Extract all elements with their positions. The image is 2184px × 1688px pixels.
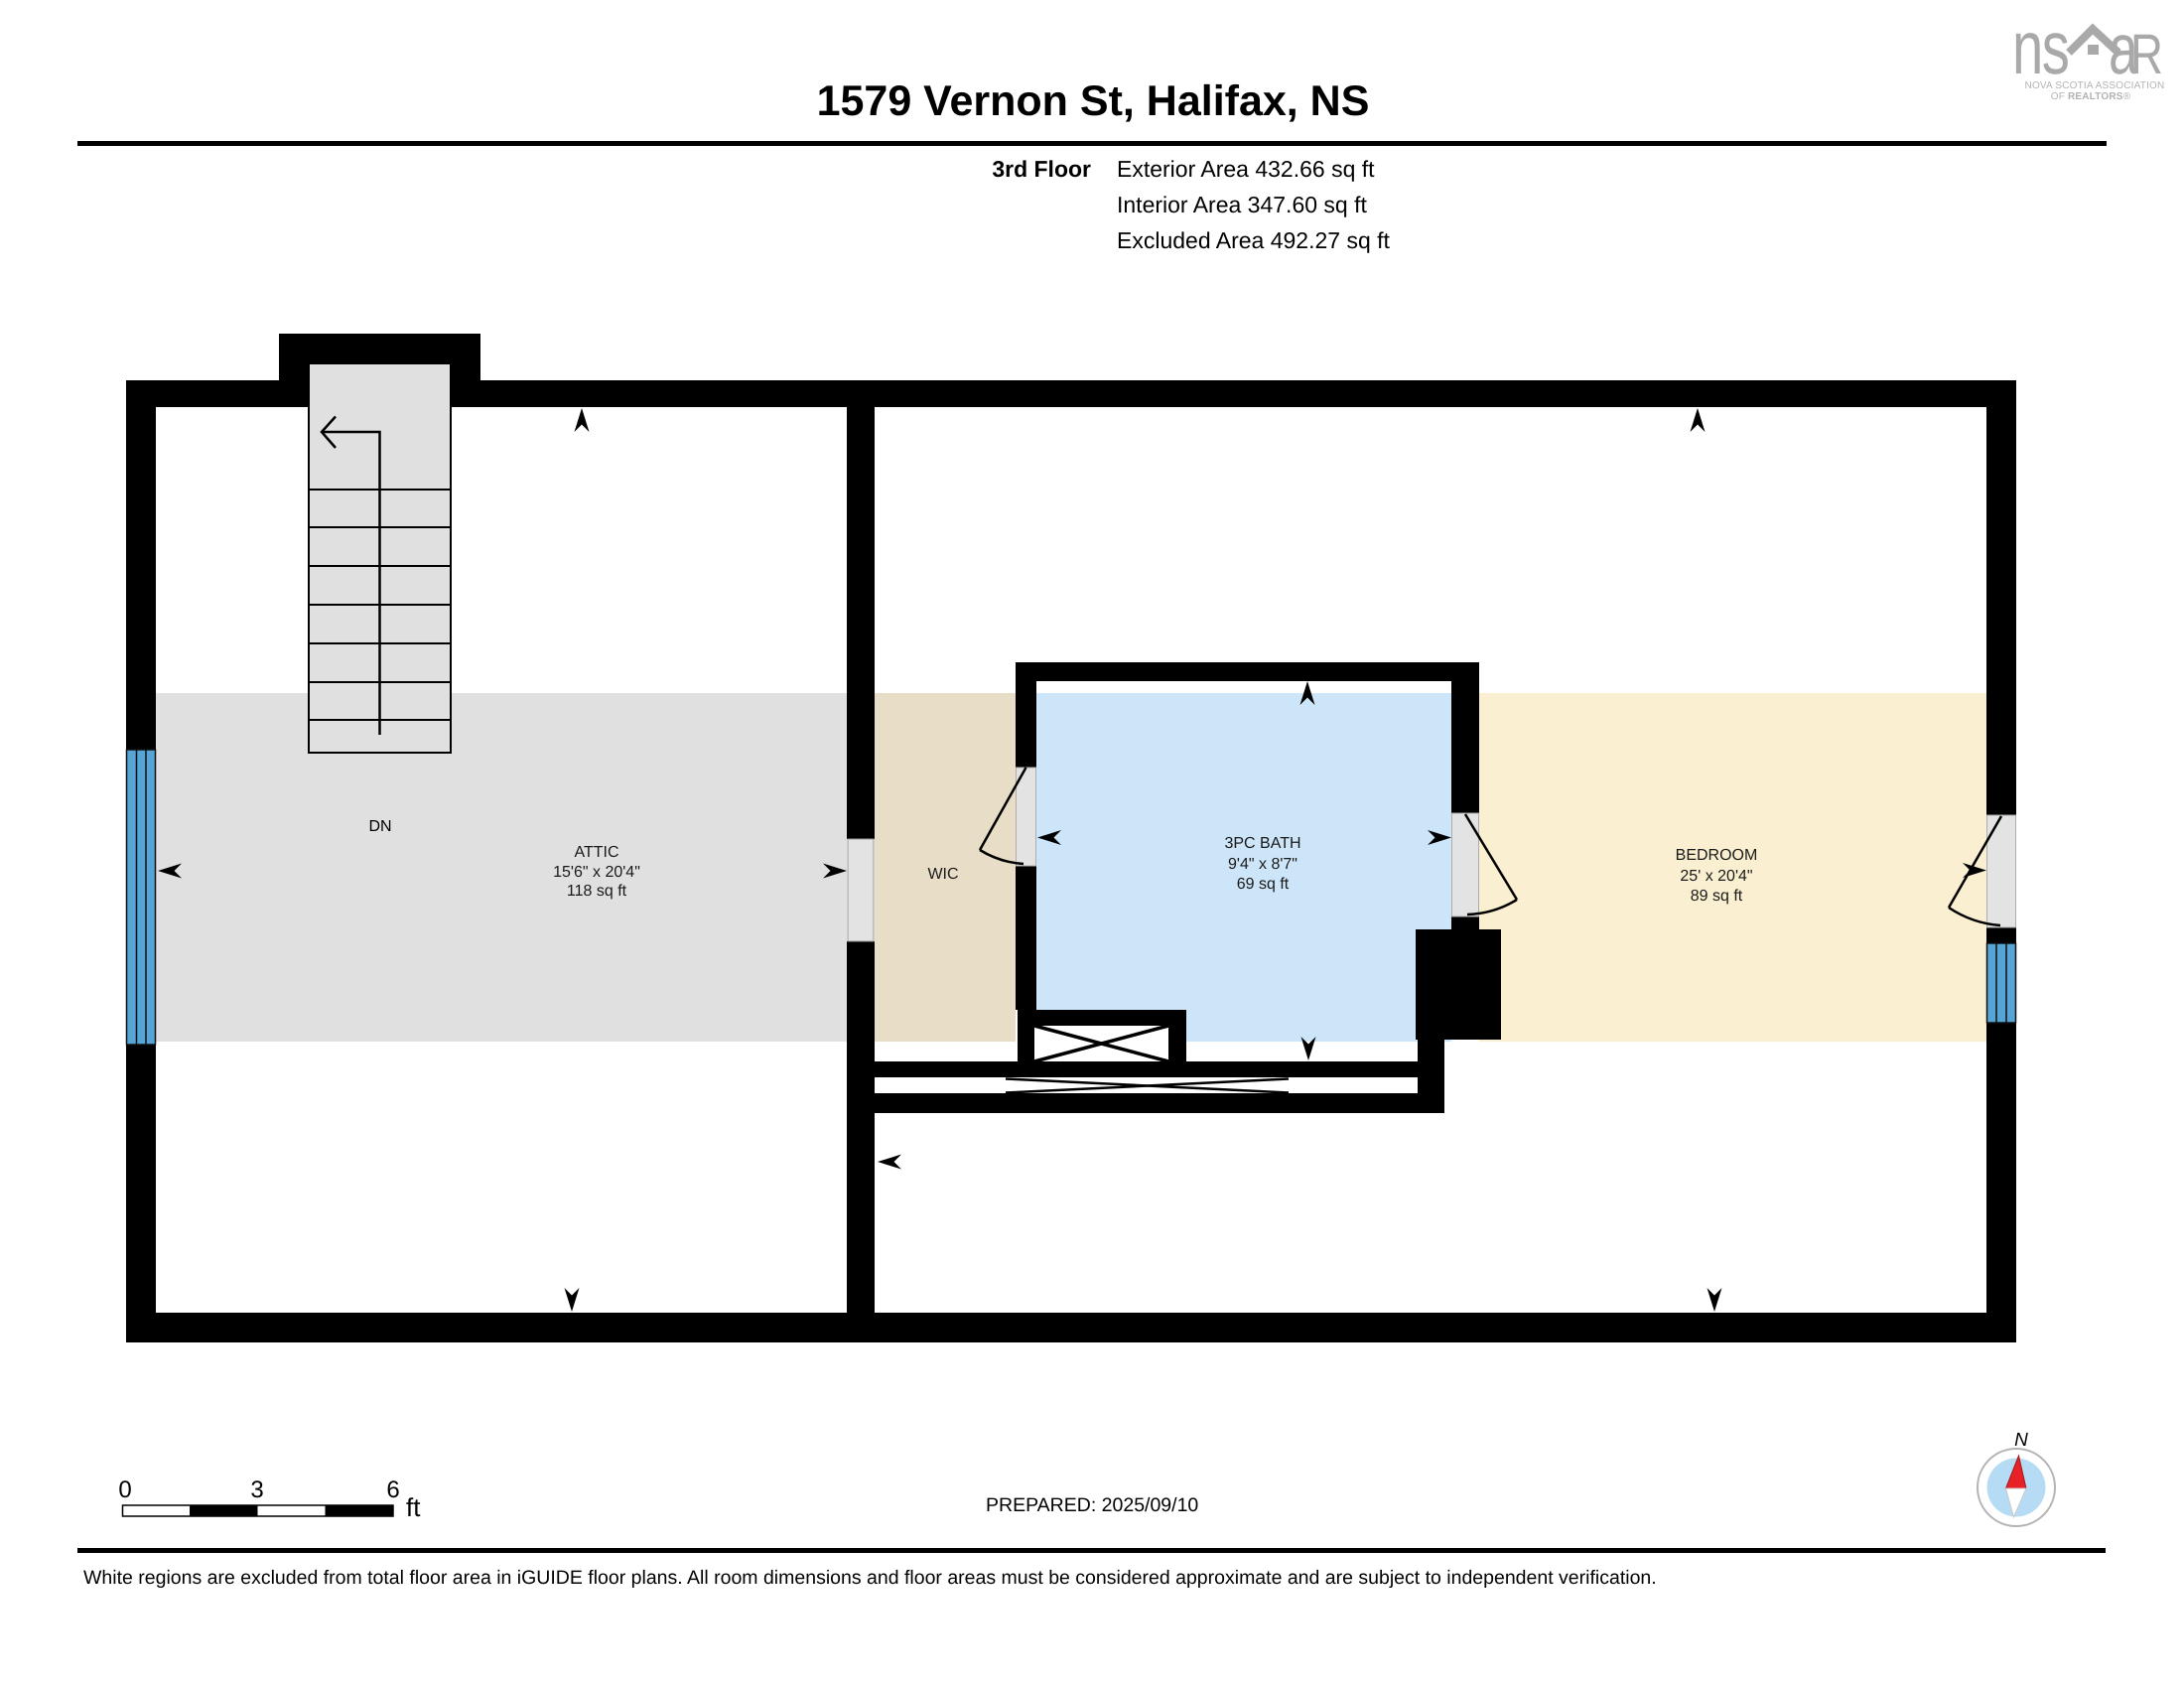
svg-text:6: 6 (386, 1477, 399, 1503)
svg-text:OF REALTORS®: OF REALTORS® (2051, 91, 2131, 102)
svg-text:ft: ft (406, 1492, 421, 1522)
svg-text:BEDROOM: BEDROOM (1676, 847, 1758, 864)
svg-text:N: N (2014, 1430, 2028, 1451)
svg-text:3PC BATH: 3PC BATH (1224, 835, 1300, 852)
svg-text:Interior Area 347.60 sq ft: Interior Area 347.60 sq ft (1117, 192, 1367, 217)
svg-text:9'4" x 8'7": 9'4" x 8'7" (1228, 856, 1297, 873)
svg-text:White regions are excluded fro: White regions are excluded from total fl… (83, 1567, 1657, 1589)
svg-text:89 sq ft: 89 sq ft (1691, 888, 1743, 905)
svg-text:NOVA SCOTIA ASSOCIATION: NOVA SCOTIA ASSOCIATION (2025, 80, 2165, 91)
svg-text:WIC: WIC (927, 866, 958, 883)
svg-text:118 sq ft: 118 sq ft (567, 883, 627, 900)
svg-text:Exterior Area 432.66 sq ft: Exterior Area 432.66 sq ft (1117, 156, 1375, 182)
svg-text:15'6" x 20'4": 15'6" x 20'4" (553, 864, 640, 881)
svg-text:0: 0 (118, 1477, 131, 1503)
svg-text:ns: ns (2012, 6, 2068, 90)
svg-text:DN: DN (368, 818, 391, 835)
svg-text:3: 3 (250, 1477, 263, 1503)
svg-text:25' x 20'4": 25' x 20'4" (1680, 868, 1752, 885)
svg-text:PREPARED: 2025/09/10: PREPARED: 2025/09/10 (986, 1494, 1198, 1516)
svg-text:1579 Vernon St, Halifax, NS: 1579 Vernon St, Halifax, NS (817, 77, 1370, 125)
svg-text:69 sq ft: 69 sq ft (1237, 876, 1290, 893)
svg-text:3rd Floor: 3rd Floor (992, 156, 1091, 182)
svg-text:R: R (2130, 23, 2163, 86)
svg-text:Excluded Area 492.27 sq ft: Excluded Area 492.27 sq ft (1117, 227, 1391, 253)
svg-text:ATTIC: ATTIC (574, 844, 618, 861)
